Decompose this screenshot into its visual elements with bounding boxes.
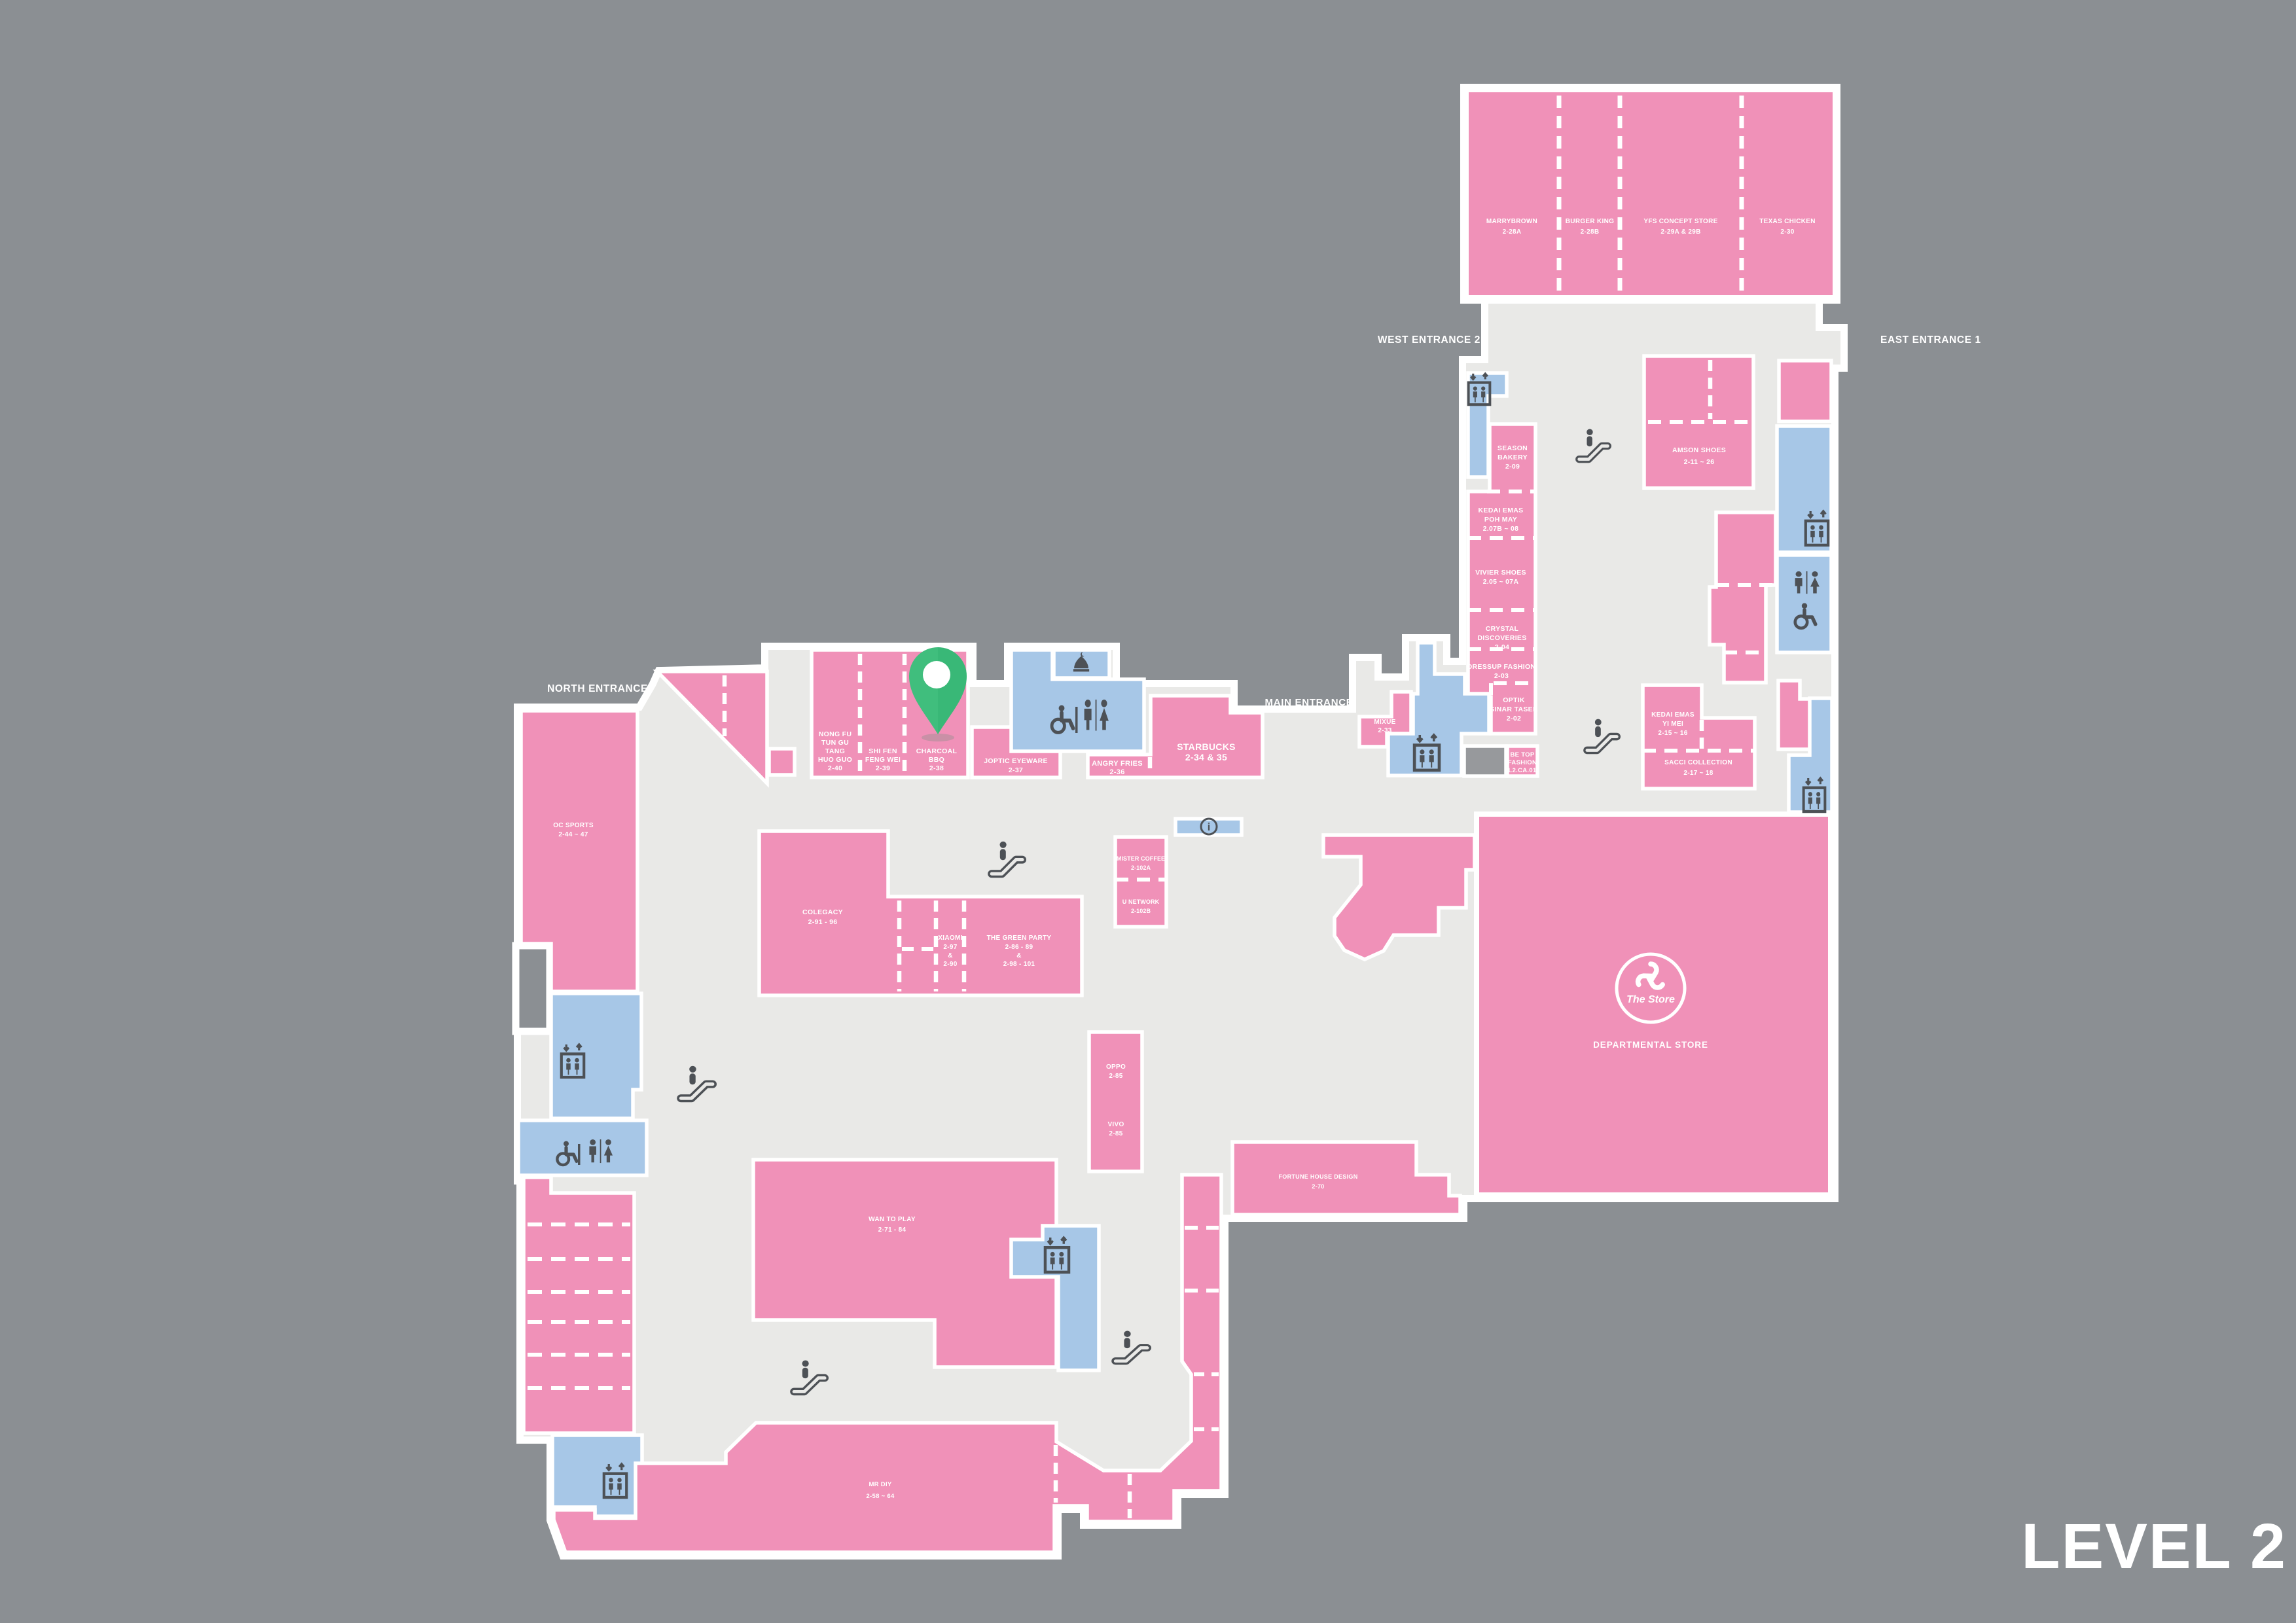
svg-text:KEDAI EMAS: KEDAI EMAS — [1479, 507, 1524, 514]
svg-text:2-86 - 89: 2-86 - 89 — [1005, 944, 1033, 951]
svg-text:MISTER COFFEE: MISTER COFFEE — [1117, 855, 1165, 862]
svg-text:2-91 - 96: 2-91 - 96 — [808, 918, 838, 926]
svg-text:VIVO: VIVO — [1107, 1121, 1124, 1128]
svg-text:BE TOP: BE TOP — [1511, 751, 1535, 758]
svg-text:VIVIER SHOES: VIVIER SHOES — [1475, 569, 1526, 577]
svg-text:OC SPORTS: OC SPORTS — [553, 822, 594, 829]
svg-text:FORTUNE HOUSE DESIGN: FORTUNE HOUSE DESIGN — [1278, 1173, 1357, 1180]
svg-text:2-02: 2-02 — [1507, 715, 1521, 722]
svg-text:2-15 ~ 16: 2-15 ~ 16 — [1658, 730, 1687, 737]
svg-text:2-17 ~ 18: 2-17 ~ 18 — [1683, 770, 1713, 777]
svg-text:MAIN ENTRANCE: MAIN ENTRANCE — [1265, 697, 1354, 708]
svg-text:2-03: 2-03 — [1494, 672, 1509, 680]
svg-text:U NETWORK: U NETWORK — [1122, 899, 1160, 905]
svg-text:CHARCOAL: CHARCOAL — [916, 747, 958, 755]
svg-text:YI MEI: YI MEI — [1662, 721, 1683, 728]
svg-text:BAKERY: BAKERY — [1498, 454, 1528, 461]
svg-text:BURGER KING: BURGER KING — [1566, 218, 1614, 225]
svg-text:SHI FEN: SHI FEN — [869, 747, 897, 755]
svg-text:2-09: 2-09 — [1505, 463, 1520, 471]
svg-text:OPPO: OPPO — [1106, 1063, 1126, 1071]
svg-text:2-102A: 2-102A — [1131, 865, 1151, 871]
svg-text:2-85: 2-85 — [1109, 1073, 1122, 1080]
svg-text:2-29A & 29B: 2-29A & 29B — [1660, 228, 1700, 236]
svg-text:SINAR TASEK: SINAR TASEK — [1490, 705, 1538, 713]
svg-text:2-04: 2-04 — [1495, 643, 1509, 651]
svg-text:L2.CA.01: L2.CA.01 — [1508, 767, 1536, 774]
svg-text:2-85: 2-85 — [1109, 1130, 1122, 1137]
svg-text:&: & — [948, 952, 953, 959]
svg-text:KEDAI EMAS: KEDAI EMAS — [1651, 711, 1695, 719]
svg-text:2-102B: 2-102B — [1131, 908, 1151, 914]
svg-text:POH MAY: POH MAY — [1484, 516, 1517, 524]
svg-text:EAST ENTRANCE 1: EAST ENTRANCE 1 — [1880, 334, 1981, 346]
svg-text:i: i — [1208, 821, 1211, 833]
svg-text:HUO GUO: HUO GUO — [818, 756, 852, 764]
svg-text:MARRYBROWN: MARRYBROWN — [1486, 218, 1537, 225]
svg-text:DISCOVERIES: DISCOVERIES — [1477, 634, 1526, 642]
svg-text:WEST ENTRANCE 2: WEST ENTRANCE 2 — [1378, 334, 1480, 346]
svg-text:YFS CONCEPT STORE: YFS CONCEPT STORE — [1643, 218, 1717, 225]
svg-text:THE GREEN PARTY: THE GREEN PARTY — [987, 935, 1052, 942]
svg-text:2-28B: 2-28B — [1581, 228, 1600, 236]
svg-text:NORTH ENTRANCE: NORTH ENTRANCE — [547, 683, 648, 694]
svg-text:CRYSTAL: CRYSTAL — [1486, 625, 1519, 633]
svg-text:SACCI COLLECTION: SACCI COLLECTION — [1664, 759, 1732, 766]
svg-text:DEPARTMENTAL STORE: DEPARTMENTAL STORE — [1593, 1040, 1708, 1050]
svg-text:WAN TO PLAY: WAN TO PLAY — [869, 1216, 916, 1223]
svg-text:2-90: 2-90 — [943, 961, 957, 968]
svg-text:2-37: 2-37 — [1009, 766, 1023, 774]
svg-text:2-38: 2-38 — [929, 764, 944, 772]
svg-text:FASHION: FASHION — [1508, 759, 1537, 766]
svg-text:2-28A: 2-28A — [1503, 228, 1522, 236]
svg-text:2-11 ~ 26: 2-11 ~ 26 — [1684, 458, 1715, 466]
svg-text:BBQ: BBQ — [929, 756, 944, 764]
svg-text:FENG WEI: FENG WEI — [865, 756, 901, 764]
svg-text:STARBUCKS: STARBUCKS — [1177, 741, 1236, 752]
svg-text:The Store: The Store — [1626, 994, 1675, 1005]
svg-text:DRESSUP FASHION: DRESSUP FASHION — [1467, 663, 1536, 671]
svg-text:MIXUE: MIXUE — [1374, 719, 1395, 726]
svg-text:2-97: 2-97 — [943, 944, 957, 951]
svg-text:TUN GU: TUN GU — [821, 739, 849, 747]
svg-text:ANGRY FRIES: ANGRY FRIES — [1092, 760, 1143, 768]
svg-text:2-39: 2-39 — [876, 764, 890, 772]
svg-text:AMSON SHOES: AMSON SHOES — [1672, 446, 1726, 454]
svg-text:2-34 & 35: 2-34 & 35 — [1185, 752, 1227, 762]
svg-text:OPTIK: OPTIK — [1503, 696, 1525, 704]
svg-text:LEVEL 2: LEVEL 2 — [2021, 1510, 2287, 1582]
svg-text:&: & — [1016, 952, 1022, 959]
svg-text:TANG: TANG — [825, 747, 845, 755]
svg-text:NONG FU: NONG FU — [819, 730, 852, 738]
svg-text:SEASON: SEASON — [1498, 444, 1528, 452]
svg-text:2-44 ~ 47: 2-44 ~ 47 — [558, 831, 588, 838]
svg-text:2-40: 2-40 — [828, 764, 842, 772]
svg-text:2-58 ~ 64: 2-58 ~ 64 — [866, 1493, 895, 1500]
svg-text:TEXAS CHICKEN: TEXAS CHICKEN — [1759, 218, 1816, 225]
svg-text:2-98 - 101: 2-98 - 101 — [1003, 961, 1035, 968]
svg-text:2.05 ~ 07A: 2.05 ~ 07A — [1483, 578, 1519, 586]
svg-text:MR DIY: MR DIY — [869, 1481, 891, 1488]
svg-text:2-70: 2-70 — [1312, 1183, 1324, 1190]
svg-text:2-30: 2-30 — [1780, 228, 1794, 236]
svg-text:2.07B ~ 08: 2.07B ~ 08 — [1483, 525, 1519, 533]
svg-text:XIAOMI: XIAOMI — [938, 935, 962, 942]
svg-text:COLEGACY: COLEGACY — [802, 908, 843, 916]
svg-text:2-36: 2-36 — [1109, 768, 1124, 776]
svg-text:2-71 - 84: 2-71 - 84 — [878, 1226, 906, 1234]
svg-text:JOPTIC EYEWARE: JOPTIC EYEWARE — [984, 757, 1048, 765]
